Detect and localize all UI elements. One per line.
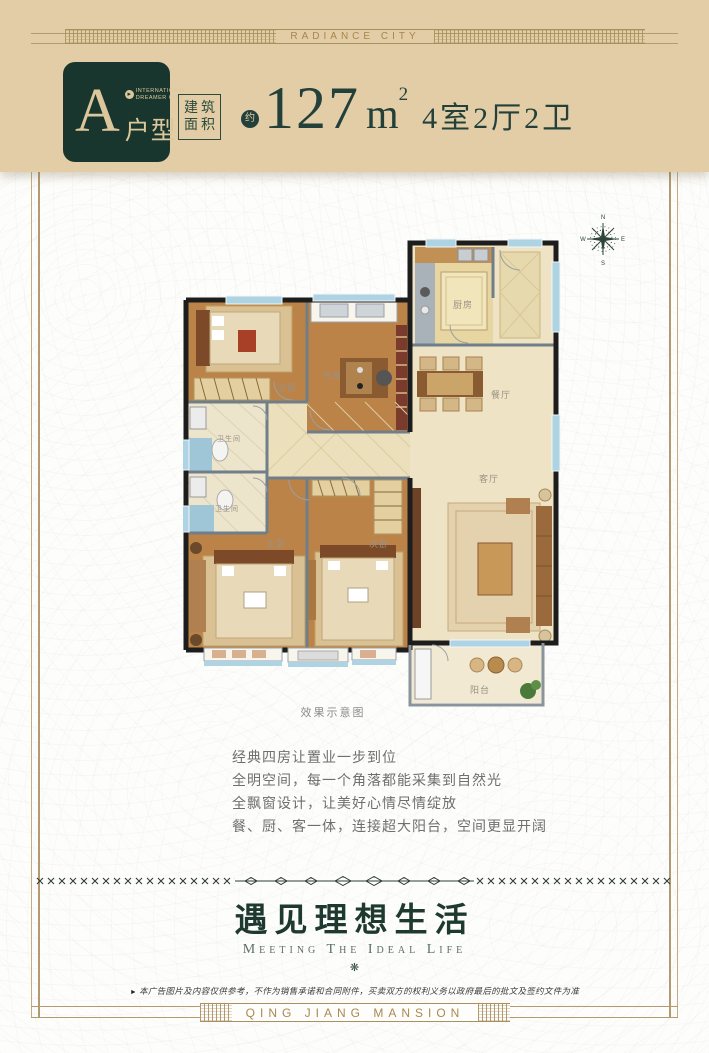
poster-page: RADIANCE CITY A ▸ INTERNATIONAL DREAMER …	[0, 0, 709, 1053]
label-master: 主卧	[266, 538, 286, 549]
area-unit: m2	[366, 84, 408, 139]
fretwork-pattern-left	[200, 1004, 232, 1021]
compass-w: W	[580, 237, 586, 243]
disclaimer-text: ►本广告图片及内容仅供参考，不作为销售承诺和合同附件，买卖双方的权利义务以政府最…	[94, 985, 615, 997]
compass-n: N	[601, 215, 605, 221]
room-bath2	[184, 473, 267, 533]
project-name-en: RADIANCE CITY	[276, 30, 433, 43]
room-spec: 4室2厅2卫	[422, 93, 575, 137]
fretwork-pattern-right	[434, 30, 645, 43]
label-balcony: 阳台	[470, 684, 490, 695]
label-dining: 餐厅	[491, 389, 511, 400]
label-study: 书房	[322, 370, 342, 381]
unit-letter: A	[75, 72, 120, 154]
fretwork-pattern-right	[478, 1004, 510, 1021]
feature-line: 全明空间，每一个角落都能采集到自然光	[232, 769, 547, 792]
label-bedroom-top: 次卧	[277, 382, 297, 393]
feature-line: 餐、厨、客一体，连接超大阳台，空间更显开阔	[232, 815, 547, 838]
project-name-footer: QING JIANG MANSION	[232, 1004, 479, 1021]
area-box-line2: 面积	[184, 117, 218, 134]
plan-caption: 效果示意图	[233, 704, 433, 720]
feature-line: 全飘窗设计，让美好心情尽情绽放	[232, 792, 547, 815]
top-ornament-band: RADIANCE CITY	[65, 29, 645, 44]
unit-type-badge: A ▸ INTERNATIONAL DREAMER CITY 户型	[63, 62, 170, 162]
area-spec-row: 127 m2 4室2厅2卫	[264, 74, 575, 143]
slogan-subtitle: Meeting The Ideal Life	[0, 942, 709, 958]
slogan-title: 遇见理想生活	[0, 893, 709, 941]
label-bedroom-bottom: 次卧	[369, 538, 389, 549]
frame-line-left-outer	[31, 33, 32, 1017]
label-living: 客厅	[479, 473, 499, 484]
header-banner: RADIANCE CITY A ▸ INTERNATIONAL DREAMER …	[0, 0, 709, 172]
badge-arrow-icon: ▸	[125, 90, 134, 99]
building-area-box: 建筑 面积	[178, 94, 221, 140]
bottom-ornament-band: QING JIANG MANSION	[200, 1003, 510, 1022]
label-bath2: 卫生间	[215, 504, 239, 513]
fretwork-pattern-left	[65, 30, 276, 43]
area-box-line1: 建筑	[184, 100, 218, 117]
compass-icon: N S W E	[579, 211, 627, 269]
compass-s: S	[601, 261, 605, 267]
room-kitchen	[415, 247, 493, 345]
label-kitchen: 厨房	[453, 299, 473, 310]
feature-line: 经典四房让置业一步到位	[232, 746, 547, 769]
x-pattern-divider	[35, 876, 674, 886]
frame-line-right-outer	[677, 33, 678, 1017]
compass-e: E	[621, 237, 625, 243]
master-furniture	[190, 542, 305, 646]
feature-list: 经典四房让置业一步到位 全明空间，每一个角落都能采集到自然光 全飘窗设计，让美好…	[232, 746, 547, 838]
approx-seal: 约	[241, 110, 259, 128]
unit-type-label: 户型	[125, 111, 186, 147]
area-value: 127	[264, 74, 360, 143]
frame-line-right-inner	[669, 33, 671, 1017]
flower-ornament-icon: ❋	[0, 961, 709, 974]
label-bath1: 卫生间	[217, 434, 241, 443]
frame-line-left-inner	[38, 33, 40, 1017]
disclaimer-marker-icon: ►	[130, 988, 137, 996]
dining-table	[417, 357, 483, 411]
floor-plan: 厨房 餐厅 客厅 阳台 书房 次卧 主卧 次卧 卫生间 卫生间	[183, 233, 563, 711]
